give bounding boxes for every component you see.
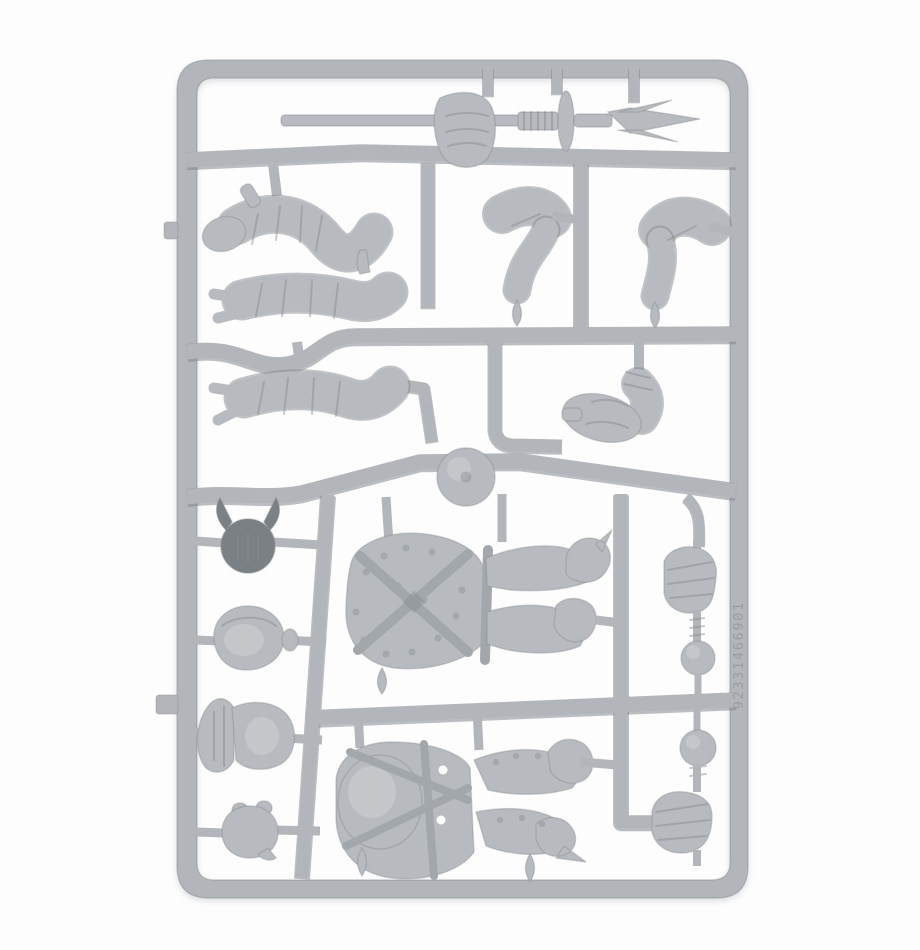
fist-mace-1-fist [664, 547, 716, 613]
arm-3-gate [297, 342, 300, 364]
arm-1-gate [273, 164, 277, 196]
sprue-photo-canvas: 92331466901 [0, 0, 920, 950]
moulding-disc [437, 448, 495, 506]
sprue-photo: 92331466901 [0, 0, 920, 950]
body-lower-rivet-hole-2 [437, 816, 446, 825]
fist-mace-2-ball [680, 730, 716, 766]
arm-2-limb [242, 292, 388, 302]
booted-leg-peg [562, 408, 582, 421]
spear-gripping-hand [434, 93, 495, 168]
leg-right-calf [655, 240, 663, 296]
body-upper-boot-bottom [554, 599, 596, 642]
frame-side-tab-lower [156, 695, 178, 714]
fist-mace-1-ball [681, 641, 715, 675]
arm-3-limb [244, 386, 390, 400]
helmet-open-face-cavity [224, 624, 264, 656]
embossed-code-text: 92331466901 [732, 601, 747, 709]
frame-side-tab-upper [164, 222, 178, 239]
disc-nub [461, 472, 472, 483]
spear-guard-disc [558, 91, 574, 151]
body-lower-rivet-hole-1 [439, 766, 448, 775]
